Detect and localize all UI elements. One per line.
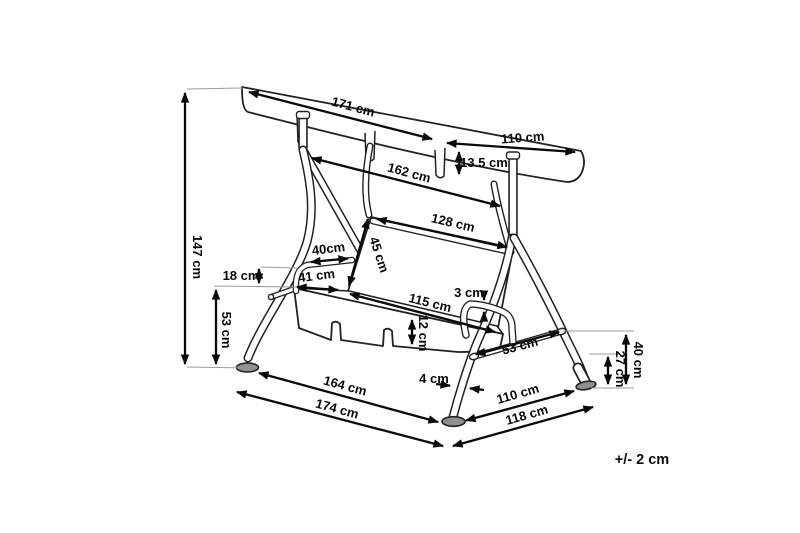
label-canopy-depth: 110 cm bbox=[501, 129, 545, 147]
swing-dimension-diagram: 171 cm 110 cm 13.5 cm 162 cm 128 cm 45 c… bbox=[0, 0, 800, 533]
label-rear-leg-upper: 40 cm bbox=[631, 342, 646, 379]
label-total-height: 147 cm bbox=[190, 235, 205, 279]
label-leg-tube-width: 4 cm bbox=[419, 371, 449, 386]
label-base-front-width: 164 cm bbox=[322, 373, 368, 399]
front-right-foot bbox=[442, 417, 465, 427]
post-right-cap bbox=[507, 152, 520, 159]
label-overall-depth: 118 cm bbox=[504, 401, 550, 427]
label-side-strut-length: 53 cm bbox=[500, 334, 540, 358]
label-seat-front-height: 12 cm bbox=[416, 315, 431, 352]
dim-arrow-overall-width bbox=[237, 392, 443, 446]
post-left-cap bbox=[297, 112, 310, 119]
label-armrest-length: 40cm bbox=[311, 239, 346, 258]
label-armrest-above-seat: 18 cm bbox=[223, 268, 260, 283]
label-canopy-valance-height: 13.5 cm bbox=[460, 155, 508, 170]
label-seat-depth: 41 cm bbox=[297, 266, 335, 285]
label-rear-leg-lower: 27 cm bbox=[613, 351, 628, 388]
dim-arrow-leg-tube-right bbox=[470, 388, 484, 390]
canopy-tab-right bbox=[435, 148, 445, 178]
left-link-pivot bbox=[268, 294, 273, 299]
rear-right-foot bbox=[575, 380, 596, 391]
label-armrest-tube: 3 cm bbox=[454, 285, 484, 300]
label-seat-height: 53 cm bbox=[219, 312, 234, 349]
diagram-canvas: 171 cm 110 cm 13.5 cm 162 cm 128 cm 45 c… bbox=[0, 0, 800, 533]
label-tolerance: +/- 2 cm bbox=[615, 452, 669, 468]
ref-armrest-level bbox=[261, 267, 297, 268]
ref-canopy-tip bbox=[187, 88, 243, 89]
